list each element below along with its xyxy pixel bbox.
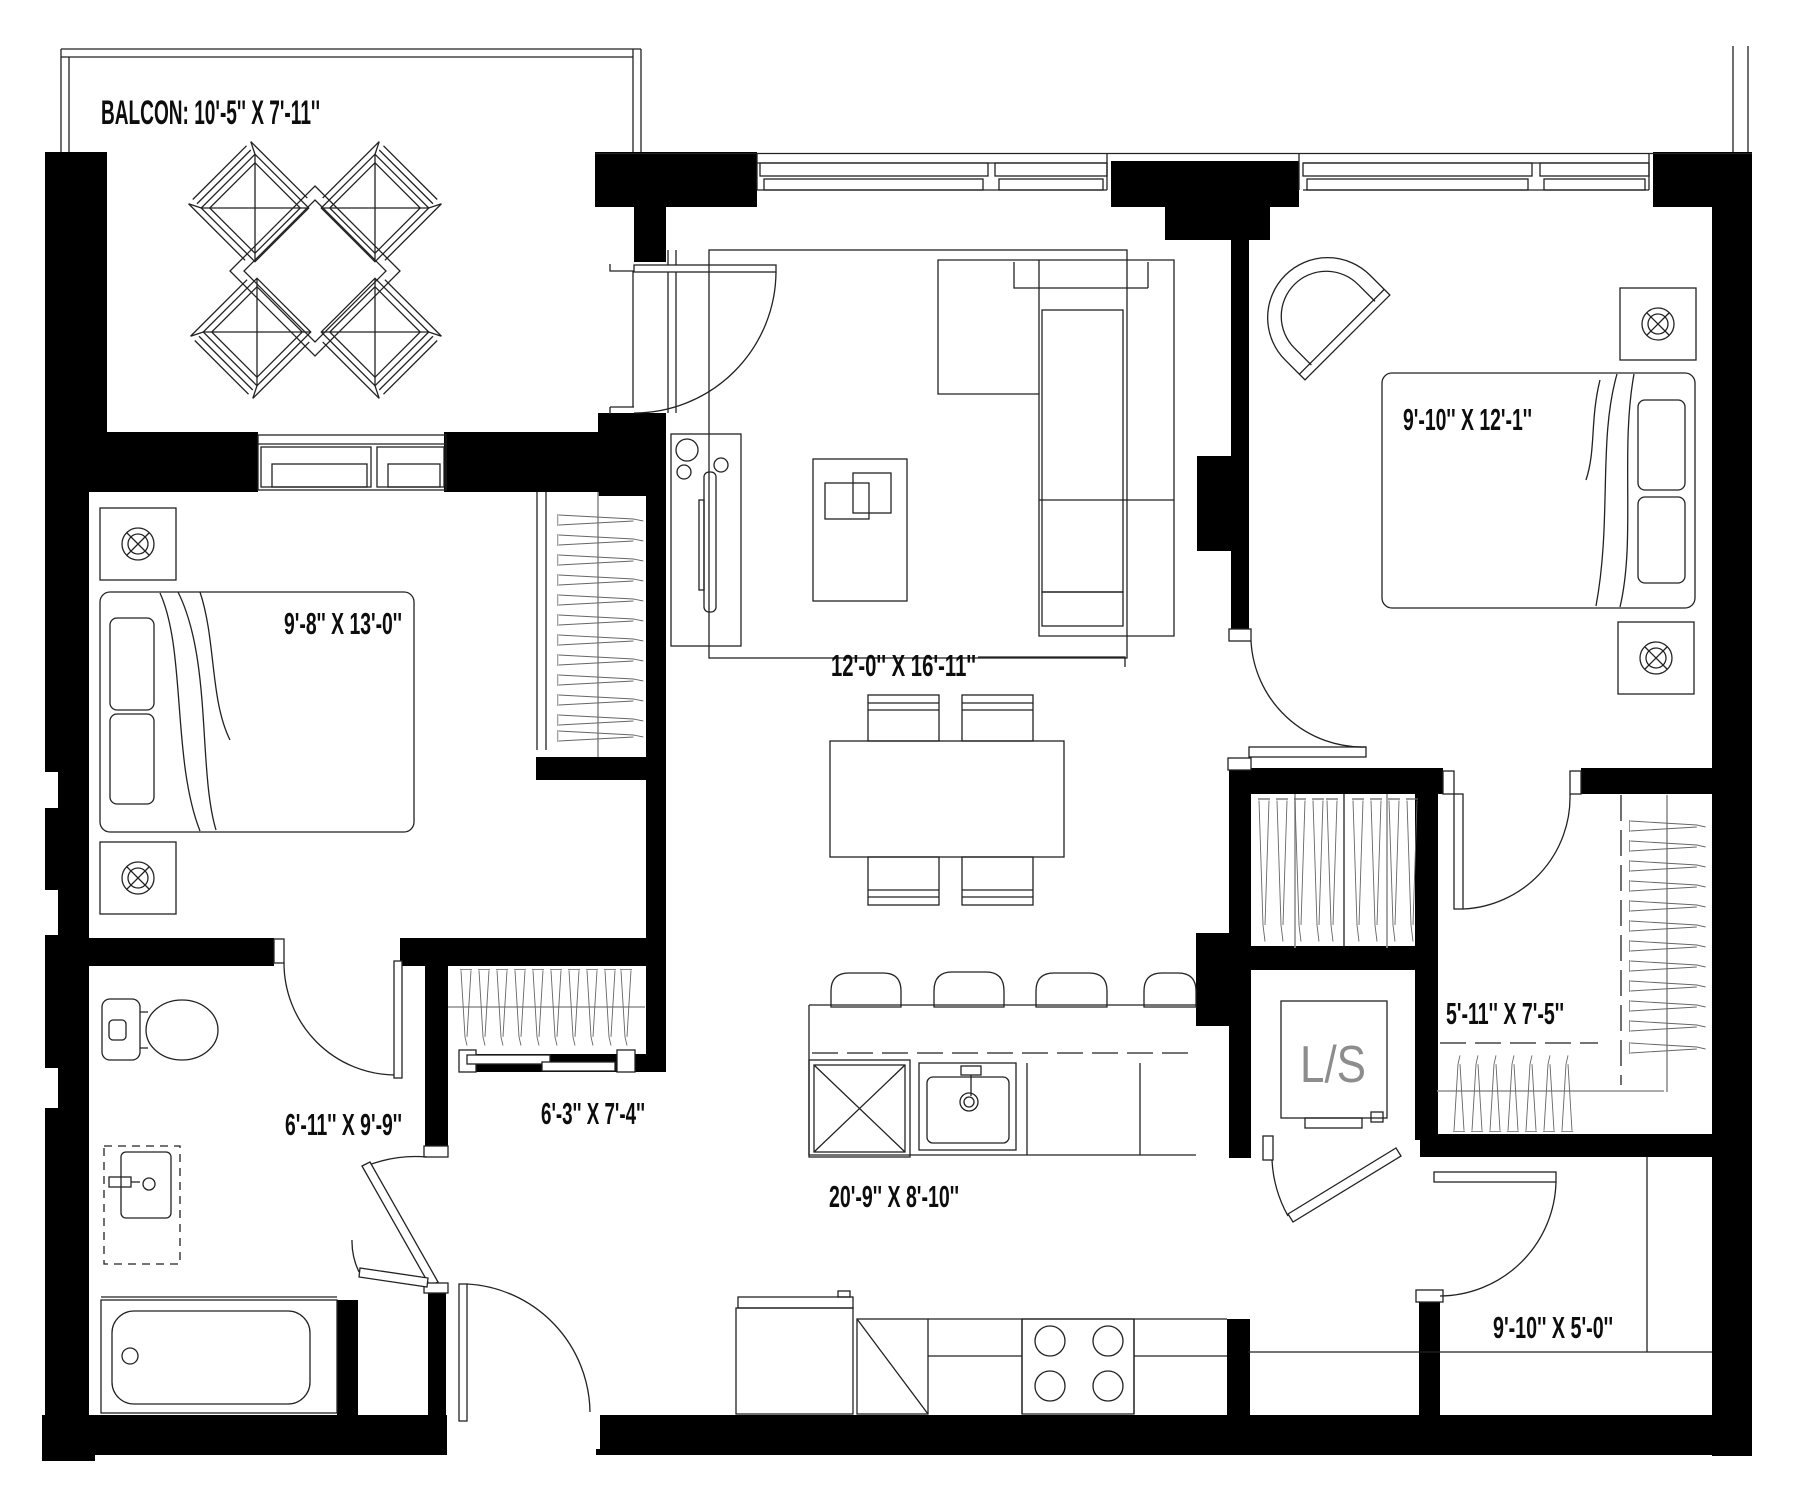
svg-text:BALCON: 10'-5'' X 7'-11'': BALCON: 10'-5'' X 7'-11'' — [101, 94, 320, 132]
svg-text:L/S: L/S — [1300, 1036, 1366, 1094]
svg-text:20'-9'' X 8'-10'': 20'-9'' X 8'-10'' — [829, 1179, 959, 1214]
svg-text:9'-10'' X 5'-0'': 9'-10'' X 5'-0'' — [1493, 1310, 1613, 1345]
svg-text:9'-10'' X 12'-1'': 9'-10'' X 12'-1'' — [1403, 402, 1532, 437]
svg-text:6'-3'' X 7'-4'': 6'-3'' X 7'-4'' — [541, 1096, 645, 1131]
svg-text:6'-11'' X 9'-9'': 6'-11'' X 9'-9'' — [285, 1107, 402, 1142]
svg-text:12'-0'' X 16'-11'': 12'-0'' X 16'-11'' — [831, 648, 976, 683]
svg-text:9'-8'' X 13'-0'': 9'-8'' X 13'-0'' — [284, 606, 402, 641]
svg-text:5'-11'' X 7'-5'': 5'-11'' X 7'-5'' — [1446, 996, 1564, 1031]
